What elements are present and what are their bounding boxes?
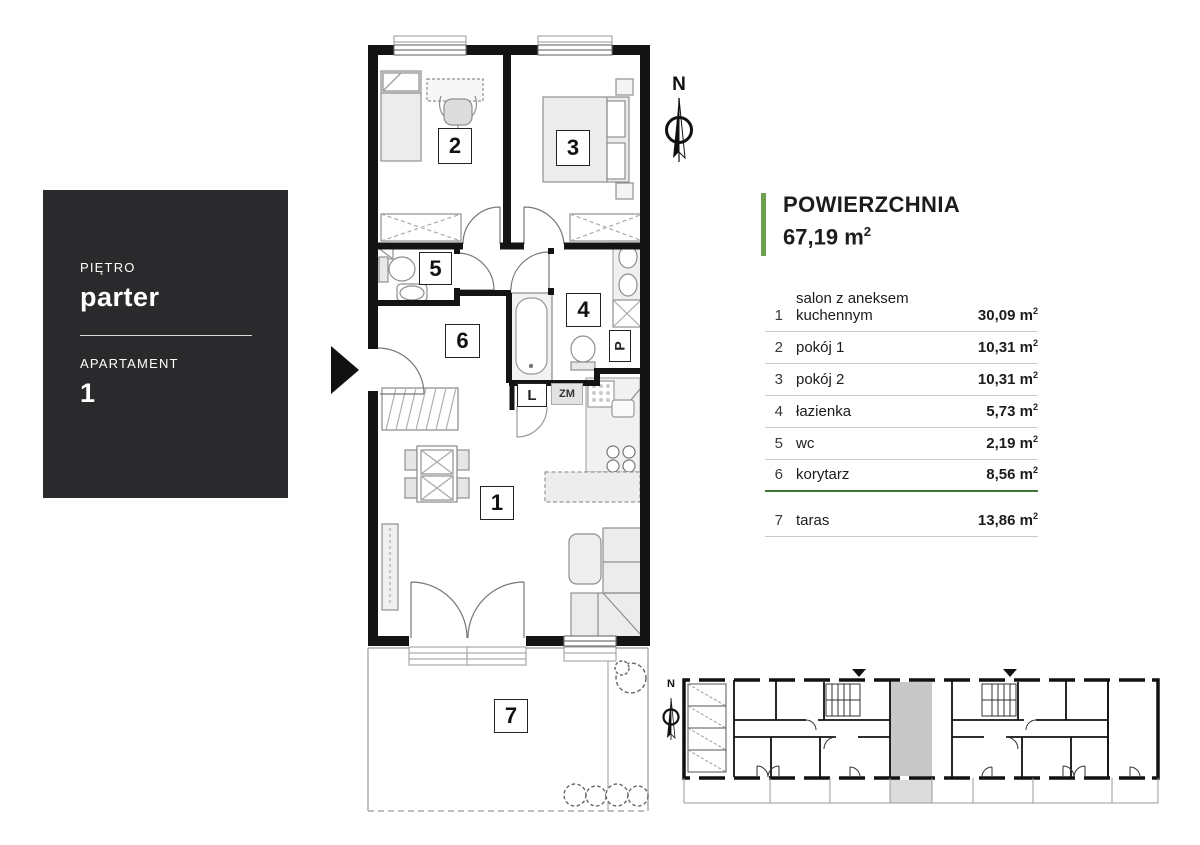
apartment-value: 1 <box>80 378 288 409</box>
room-name: łazienka <box>783 403 986 420</box>
room-name: taras <box>783 512 978 529</box>
bush-icons <box>564 661 648 806</box>
room-area: 8,56 m2 <box>986 465 1038 483</box>
total-area-value: 67,19 m2 <box>783 224 871 250</box>
table-row: 3 pokój 2 10,31 m2 <box>765 364 1038 396</box>
compass-north-label: N <box>668 74 690 96</box>
room-number: 7 <box>765 512 783 529</box>
apartment-label: APARTAMENT <box>80 356 288 371</box>
accent-bar <box>761 193 766 256</box>
card-divider <box>80 335 252 336</box>
room-area: 10,31 m2 <box>978 370 1038 388</box>
mini-plan <box>664 669 1159 803</box>
room-area: 13,86 m2 <box>978 511 1038 529</box>
table-row: 6 korytarz 8,56 m2 <box>765 460 1038 492</box>
table-row: 5 wc 2,19 m2 <box>765 428 1038 460</box>
washer-label: P <box>609 330 631 362</box>
room-area: 30,09 m2 <box>978 306 1038 324</box>
room-label-1: 1 <box>480 486 514 520</box>
room-name: korytarz <box>783 466 986 483</box>
room-name: pokój 2 <box>783 371 978 388</box>
room-label-7: 7 <box>494 699 528 733</box>
area-panel-title: POWIERZCHNIA <box>783 192 960 218</box>
floor-value: parter <box>80 282 288 313</box>
entrance-arrow-icon <box>331 346 359 394</box>
room-area: 2,19 m2 <box>986 434 1038 452</box>
floor-label: PIĘTRO <box>80 260 288 275</box>
table-row: 1 salon z aneksem kuchennym 30,09 m2 <box>765 300 1038 332</box>
room-number: 5 <box>765 435 783 452</box>
room-label-6: 6 <box>445 324 480 358</box>
dishwasher-label: ZM <box>551 383 583 405</box>
room-area: 10,31 m2 <box>978 338 1038 356</box>
room-number: 4 <box>765 403 783 420</box>
room-name: pokój 1 <box>783 339 978 356</box>
highlighted-unit <box>890 682 932 776</box>
room-number: 1 <box>765 307 783 324</box>
room-name: wc <box>783 435 986 452</box>
table-row: 4 łazienka 5,73 m2 <box>765 396 1038 428</box>
table-row: 2 pokój 1 10,31 m2 <box>765 332 1038 364</box>
room-label-3: 3 <box>556 130 590 166</box>
room-name: salon z aneksem kuchennym <box>783 290 978 324</box>
room-number: 3 <box>765 371 783 388</box>
mini-compass-icon <box>664 698 679 740</box>
room-label-4: 4 <box>566 293 601 327</box>
apartment-info-card: PIĘTRO parter APARTAMENT 1 <box>43 190 288 498</box>
fridge-label: L <box>517 383 547 407</box>
room-area-table: 1 salon z aneksem kuchennym 30,09 m2 2 p… <box>765 300 1038 537</box>
mini-compass-north-label: N <box>663 678 679 690</box>
room-number: 6 <box>765 466 783 483</box>
table-row: 7 taras 13,86 m2 <box>765 505 1038 537</box>
room-label-5: 5 <box>419 252 452 285</box>
compass-icon <box>667 98 692 162</box>
room-area: 5,73 m2 <box>986 402 1038 420</box>
page: PIĘTRO parter APARTAMENT 1 N N 1 2 3 4 5… <box>0 0 1200 845</box>
room-label-2: 2 <box>438 128 472 164</box>
room-number: 2 <box>765 339 783 356</box>
